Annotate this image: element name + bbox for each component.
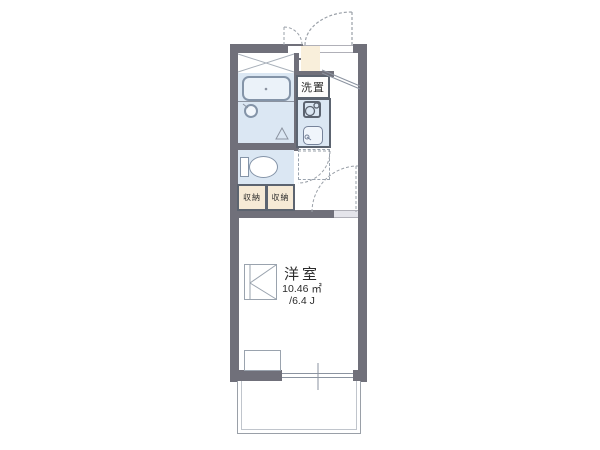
closet-1-label: 収納 <box>243 192 261 203</box>
washing-machine-space: 洗置 <box>296 75 330 99</box>
wall-storage-room <box>230 210 334 218</box>
meter-box-door-arc <box>284 27 302 45</box>
floor-plan: 収納 収納 洗置 洋室 10.46 ㎡ /6.4 J <box>0 0 600 450</box>
closet-2: 収納 <box>266 184 295 211</box>
stove <box>303 101 321 118</box>
window-line-inner <box>282 377 353 378</box>
closet-1: 収納 <box>237 184 267 211</box>
wash-basin <box>244 104 258 118</box>
top-wall-right <box>353 44 367 53</box>
wall-bath-toilet <box>238 143 299 150</box>
toilet-tank <box>240 157 249 177</box>
window-line-outer <box>282 373 353 374</box>
bath-hatch-area <box>238 53 294 73</box>
toilet-bowl <box>249 156 278 178</box>
right-wall <box>358 44 367 382</box>
bath-divider-line <box>238 101 294 102</box>
room-corner-counter <box>244 350 281 371</box>
bathtub <box>242 76 291 101</box>
kitchen-sink <box>303 126 323 145</box>
washing-machine-label: 洗置 <box>301 79 325 95</box>
entrance-tataki <box>301 46 320 71</box>
entrance-door-arc <box>305 12 352 45</box>
top-wall-left <box>230 44 288 53</box>
room-door-threshold <box>334 210 358 218</box>
folding-desk <box>244 264 277 300</box>
closet-2-label: 収納 <box>272 192 290 203</box>
refrigerator-space <box>298 149 330 180</box>
balcony-inner-rail <box>241 381 357 430</box>
